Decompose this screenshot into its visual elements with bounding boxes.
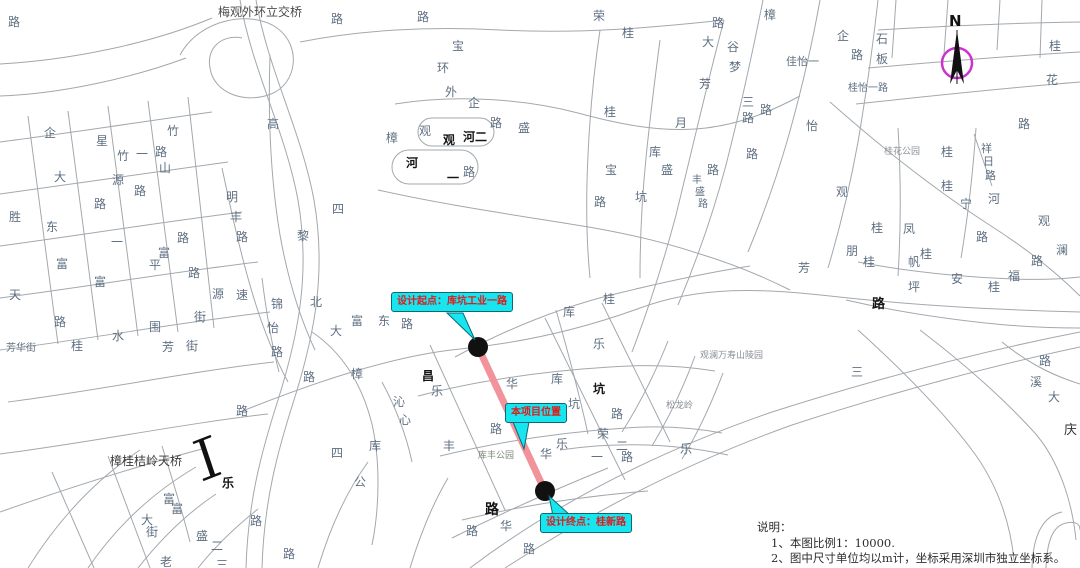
map-label: 梦 [729,61,741,73]
map-notes: 说明： 1、本图比例1：10000. 2、图中尺寸单位均以m计，坐标采用深圳市独… [757,520,1065,567]
map-label: 怡 [806,120,818,132]
notes-heading: 说明： [757,520,1065,536]
map-label: 库 [563,306,575,318]
map-label: 乐 [680,443,692,455]
map-label: 桂 [622,27,634,39]
map-label: 路 [271,346,283,358]
map-label: 丰 [230,211,242,223]
map-label: 路 [417,11,429,23]
map-label: 芳 [162,341,174,353]
map-label: 大 [330,325,342,337]
map-label: 围 [149,321,161,333]
map-label: 路 [463,166,475,178]
map-label: 富 [94,276,106,288]
map-label: 四 [331,447,343,459]
map-label: 路 [1031,255,1043,267]
map-label: 路 [401,318,413,330]
map-label: 山 [159,162,171,174]
map-label: 企 [468,97,480,109]
map-label: 路 [236,405,248,417]
map-label: 盛 [695,188,705,198]
map-label: 河 [406,157,418,169]
map-label: 樟 [386,132,398,144]
map-label: 路 [707,164,719,176]
map-label: 竹 [117,150,129,162]
notes-item-1: 1、本图比例1：10000. [757,536,1065,552]
map-label: 路 [594,196,606,208]
map-label: 街 [186,340,198,352]
map-label: 星 [96,135,108,147]
map-label: 佳怡一 [786,56,819,67]
map-label: 华 [540,448,552,460]
map-label: 路 [611,408,623,420]
map-label: 坪 [908,281,920,293]
map-label: 路 [283,548,295,560]
map-label: 库 [551,373,563,385]
map-label: 盛 [196,530,208,542]
map-label: 荣 [593,10,605,22]
map-label: 公 [354,476,366,488]
map-label: 库丰公园 [478,452,514,461]
map-label: 路 [1018,118,1030,130]
map-label: 路 [54,316,66,328]
map-label: 明 [226,191,238,203]
map-label: 宁 [960,198,972,210]
map-label: 三 [216,559,228,568]
map-label: 企 [837,30,849,42]
map-label: 路 [872,298,885,311]
map-label: 路 [236,231,248,243]
map-label: 帆 [908,256,920,268]
map-label: 芳 [798,262,810,274]
map-label: 路 [177,232,189,244]
map-label: 路 [303,371,315,383]
map-label: 路 [188,267,200,279]
map-label: 坑 [568,398,580,410]
map-label: 路 [134,185,146,197]
map-label: 路 [8,16,20,28]
map-label: 库 [369,440,381,452]
map-label: 樟桂桔岭天桥 [110,455,182,467]
map-label: 华 [506,378,518,390]
map-label: 荣 [597,428,609,440]
map-label: 路 [742,112,754,124]
map-canvas: 路梅观外环立交桥路路宝环外企荣桂路大谷梦芳月樟企石板路佳怡一桂怡一路三路怡桂花路… [0,0,1080,568]
map-label: 路 [712,17,724,29]
map-label: 沁 [393,396,405,408]
map-label: 北 [310,296,322,308]
map-label: 乐 [556,438,568,450]
map-label: 东 [46,221,58,233]
map-label: 路 [746,148,758,160]
compass-north-label: N [949,12,962,30]
map-label: 丰 [692,176,702,186]
map-label: 盛 [661,164,673,176]
map-label: 路 [155,146,167,158]
map-label: 路 [485,503,499,517]
map-label: 锦 [271,298,283,310]
map-label: 月 [675,117,687,129]
map-label: 路 [621,451,633,463]
map-label: 朋 [846,245,858,257]
map-label: 大 [1048,391,1060,403]
map-label: 街 [146,526,158,538]
map-label: 乐 [431,385,443,397]
map-label: 桂 [71,340,83,352]
map-label: 芳 [699,78,711,90]
map-label: 桂 [941,180,953,192]
map-label: 水 [112,330,124,342]
map-label: 路 [94,198,106,210]
map-label: 坑 [635,191,647,203]
map-label: 桂怡一路 [848,84,888,94]
map-label: 一 [447,172,459,184]
map-label: 庆 [1064,424,1077,437]
map-label: 观 [836,186,848,198]
map-label: 观 [419,125,431,137]
map-label: 樟 [351,368,363,380]
callout-project-location: 本项目位置 [505,403,567,423]
map-label: 源 [112,174,124,186]
map-label: 胜 [9,211,21,223]
map-label: 桂 [988,281,1000,293]
map-label: 日 [983,156,994,167]
map-label: 大 [702,36,714,48]
map-label-layer: 路梅观外环立交桥路路宝环外企荣桂路大谷梦芳月樟企石板路佳怡一桂怡一路三路怡桂花路… [0,0,1080,568]
notes-item-2: 2、图中尺寸单位均以m计，坐标采用深圳市独立坐标系。 [757,551,1065,567]
map-label: 速 [236,289,248,301]
map-label: 库 [649,146,661,158]
map-label: 三 [742,96,754,108]
map-label: 河二 [463,131,487,143]
map-label: 路 [490,423,502,435]
map-label: 观 [1038,215,1050,227]
map-label: 路 [490,117,502,129]
map-label: 富 [56,258,68,270]
map-label: 桂 [920,248,932,260]
map-label: 怡 [267,322,279,334]
map-label: 企 [44,127,56,139]
map-label: 梅观外环立交桥 [218,6,302,18]
map-label: 花 [1046,74,1058,86]
map-label: 桂花公园 [884,148,920,157]
map-label: 东 [378,315,390,327]
map-label: 一 [111,236,123,248]
map-label: 环 [437,62,449,74]
map-label: 丰 [443,440,455,452]
map-label: 路 [851,49,863,61]
map-label: 路 [985,170,996,181]
map-label: 外 [445,86,457,98]
map-label: 乐 [222,477,234,489]
map-label: 盛 [518,122,530,134]
map-label: 桂 [871,222,883,234]
map-label: 一 [591,451,603,463]
map-label: 坑 [593,383,605,395]
map-label: 老 [160,556,172,568]
map-label: 桂 [1049,40,1061,52]
map-label: 板 [876,53,888,65]
map-label: 安 [951,273,963,285]
map-label: 平 [149,259,161,271]
map-label: 石 [876,33,888,45]
map-label: 路 [331,13,343,25]
map-label: 大 [54,171,66,183]
map-label: 路 [1039,355,1051,367]
map-label: 谷 [727,41,739,53]
map-label: 心 [399,414,411,426]
map-label: 昌 [422,370,434,382]
map-label: 观澜万寿山陵园 [700,352,763,361]
map-label: 祥 [981,143,992,154]
map-label: 河 [988,193,1000,205]
map-label: 澜 [1056,244,1068,256]
map-label: 樟 [764,9,776,21]
map-label: 松龙岭 [666,402,693,411]
map-label: 黎 [297,230,309,242]
map-label: 街 [194,311,206,323]
map-label: 路 [760,104,772,116]
map-label: 富 [171,503,183,515]
map-label: 凤 [903,223,915,235]
map-label: 一 [136,148,148,160]
callout-design-start: 设计起点：库坑工业一路 [391,292,513,312]
map-label: 福 [1008,270,1020,282]
map-label: 乐 [593,338,605,350]
map-label: 桂 [604,106,616,118]
map-label: 三 [851,366,863,378]
map-label: 桂 [941,146,953,158]
map-label: 富 [351,315,363,327]
map-label: 路 [466,525,478,537]
map-label: 路 [523,543,535,555]
map-label: 竹 [167,125,179,137]
map-label: 路 [698,200,708,210]
map-label: 桂 [863,256,875,268]
map-label: 芳华街 [6,344,36,354]
callout-design-end: 设计终点：桂新路 [540,513,632,533]
map-label: 宝 [452,40,464,52]
map-label: 源 [212,288,224,300]
map-label: 路 [250,515,262,527]
map-label: 宝 [605,164,617,176]
map-label: 二 [211,540,223,552]
map-label: 华 [500,520,512,532]
map-label: 四 [332,203,344,215]
map-label: 天 [9,289,21,301]
map-label: 观 [443,134,455,146]
map-label: 溪 [1030,376,1042,388]
map-label: 高 [267,118,279,130]
map-label: 路 [976,231,988,243]
map-label: 桂 [603,293,615,305]
